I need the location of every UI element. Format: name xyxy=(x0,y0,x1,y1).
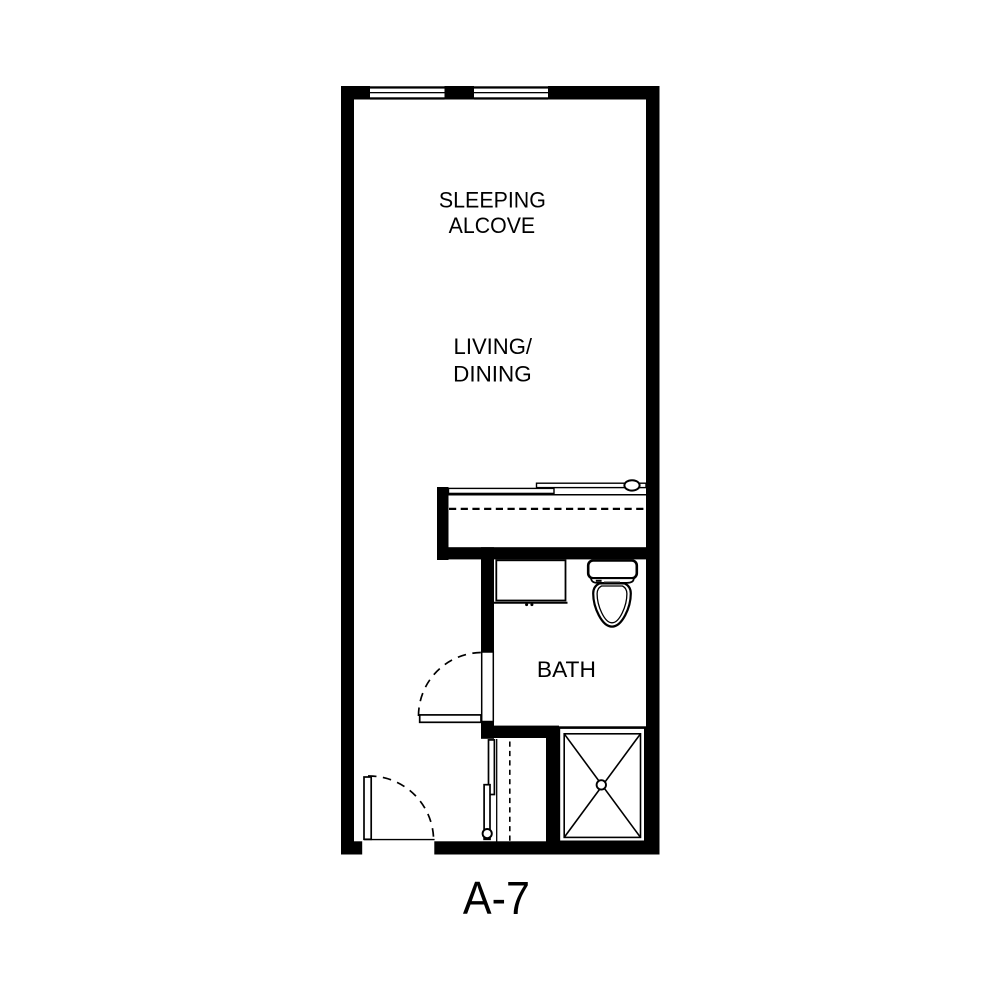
svg-text:BATH: BATH xyxy=(537,657,596,682)
svg-text:ALCOVE: ALCOVE xyxy=(449,213,536,238)
svg-text:SLEEPING: SLEEPING xyxy=(439,188,546,213)
svg-text:A-7: A-7 xyxy=(463,872,530,924)
svg-text:LIVING/: LIVING/ xyxy=(454,334,533,359)
svg-text:DINING: DINING xyxy=(453,362,532,387)
